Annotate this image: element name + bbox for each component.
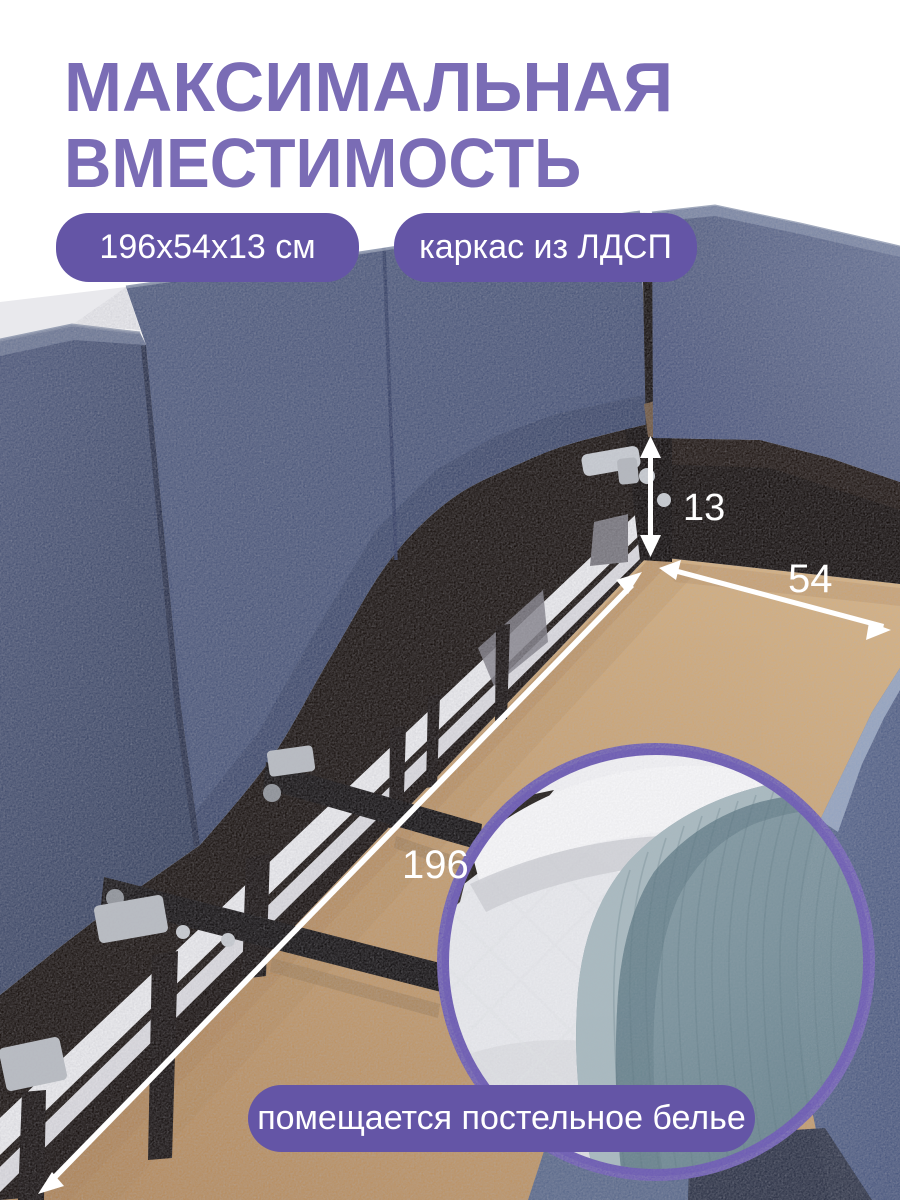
svg-text:196: 196 (402, 843, 469, 887)
svg-text:13: 13 (683, 487, 725, 529)
svg-text:54: 54 (788, 557, 833, 601)
